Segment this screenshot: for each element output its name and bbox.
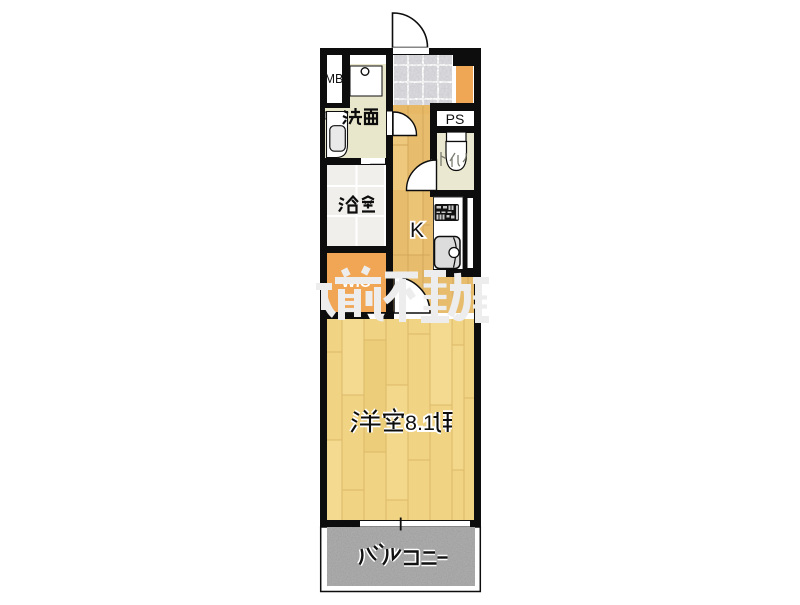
- svg-text:MB: MB: [325, 72, 344, 86]
- svg-text:K: K: [410, 219, 424, 242]
- svg-text:PS: PS: [446, 111, 465, 127]
- svg-text:8.1: 8.1: [405, 411, 435, 435]
